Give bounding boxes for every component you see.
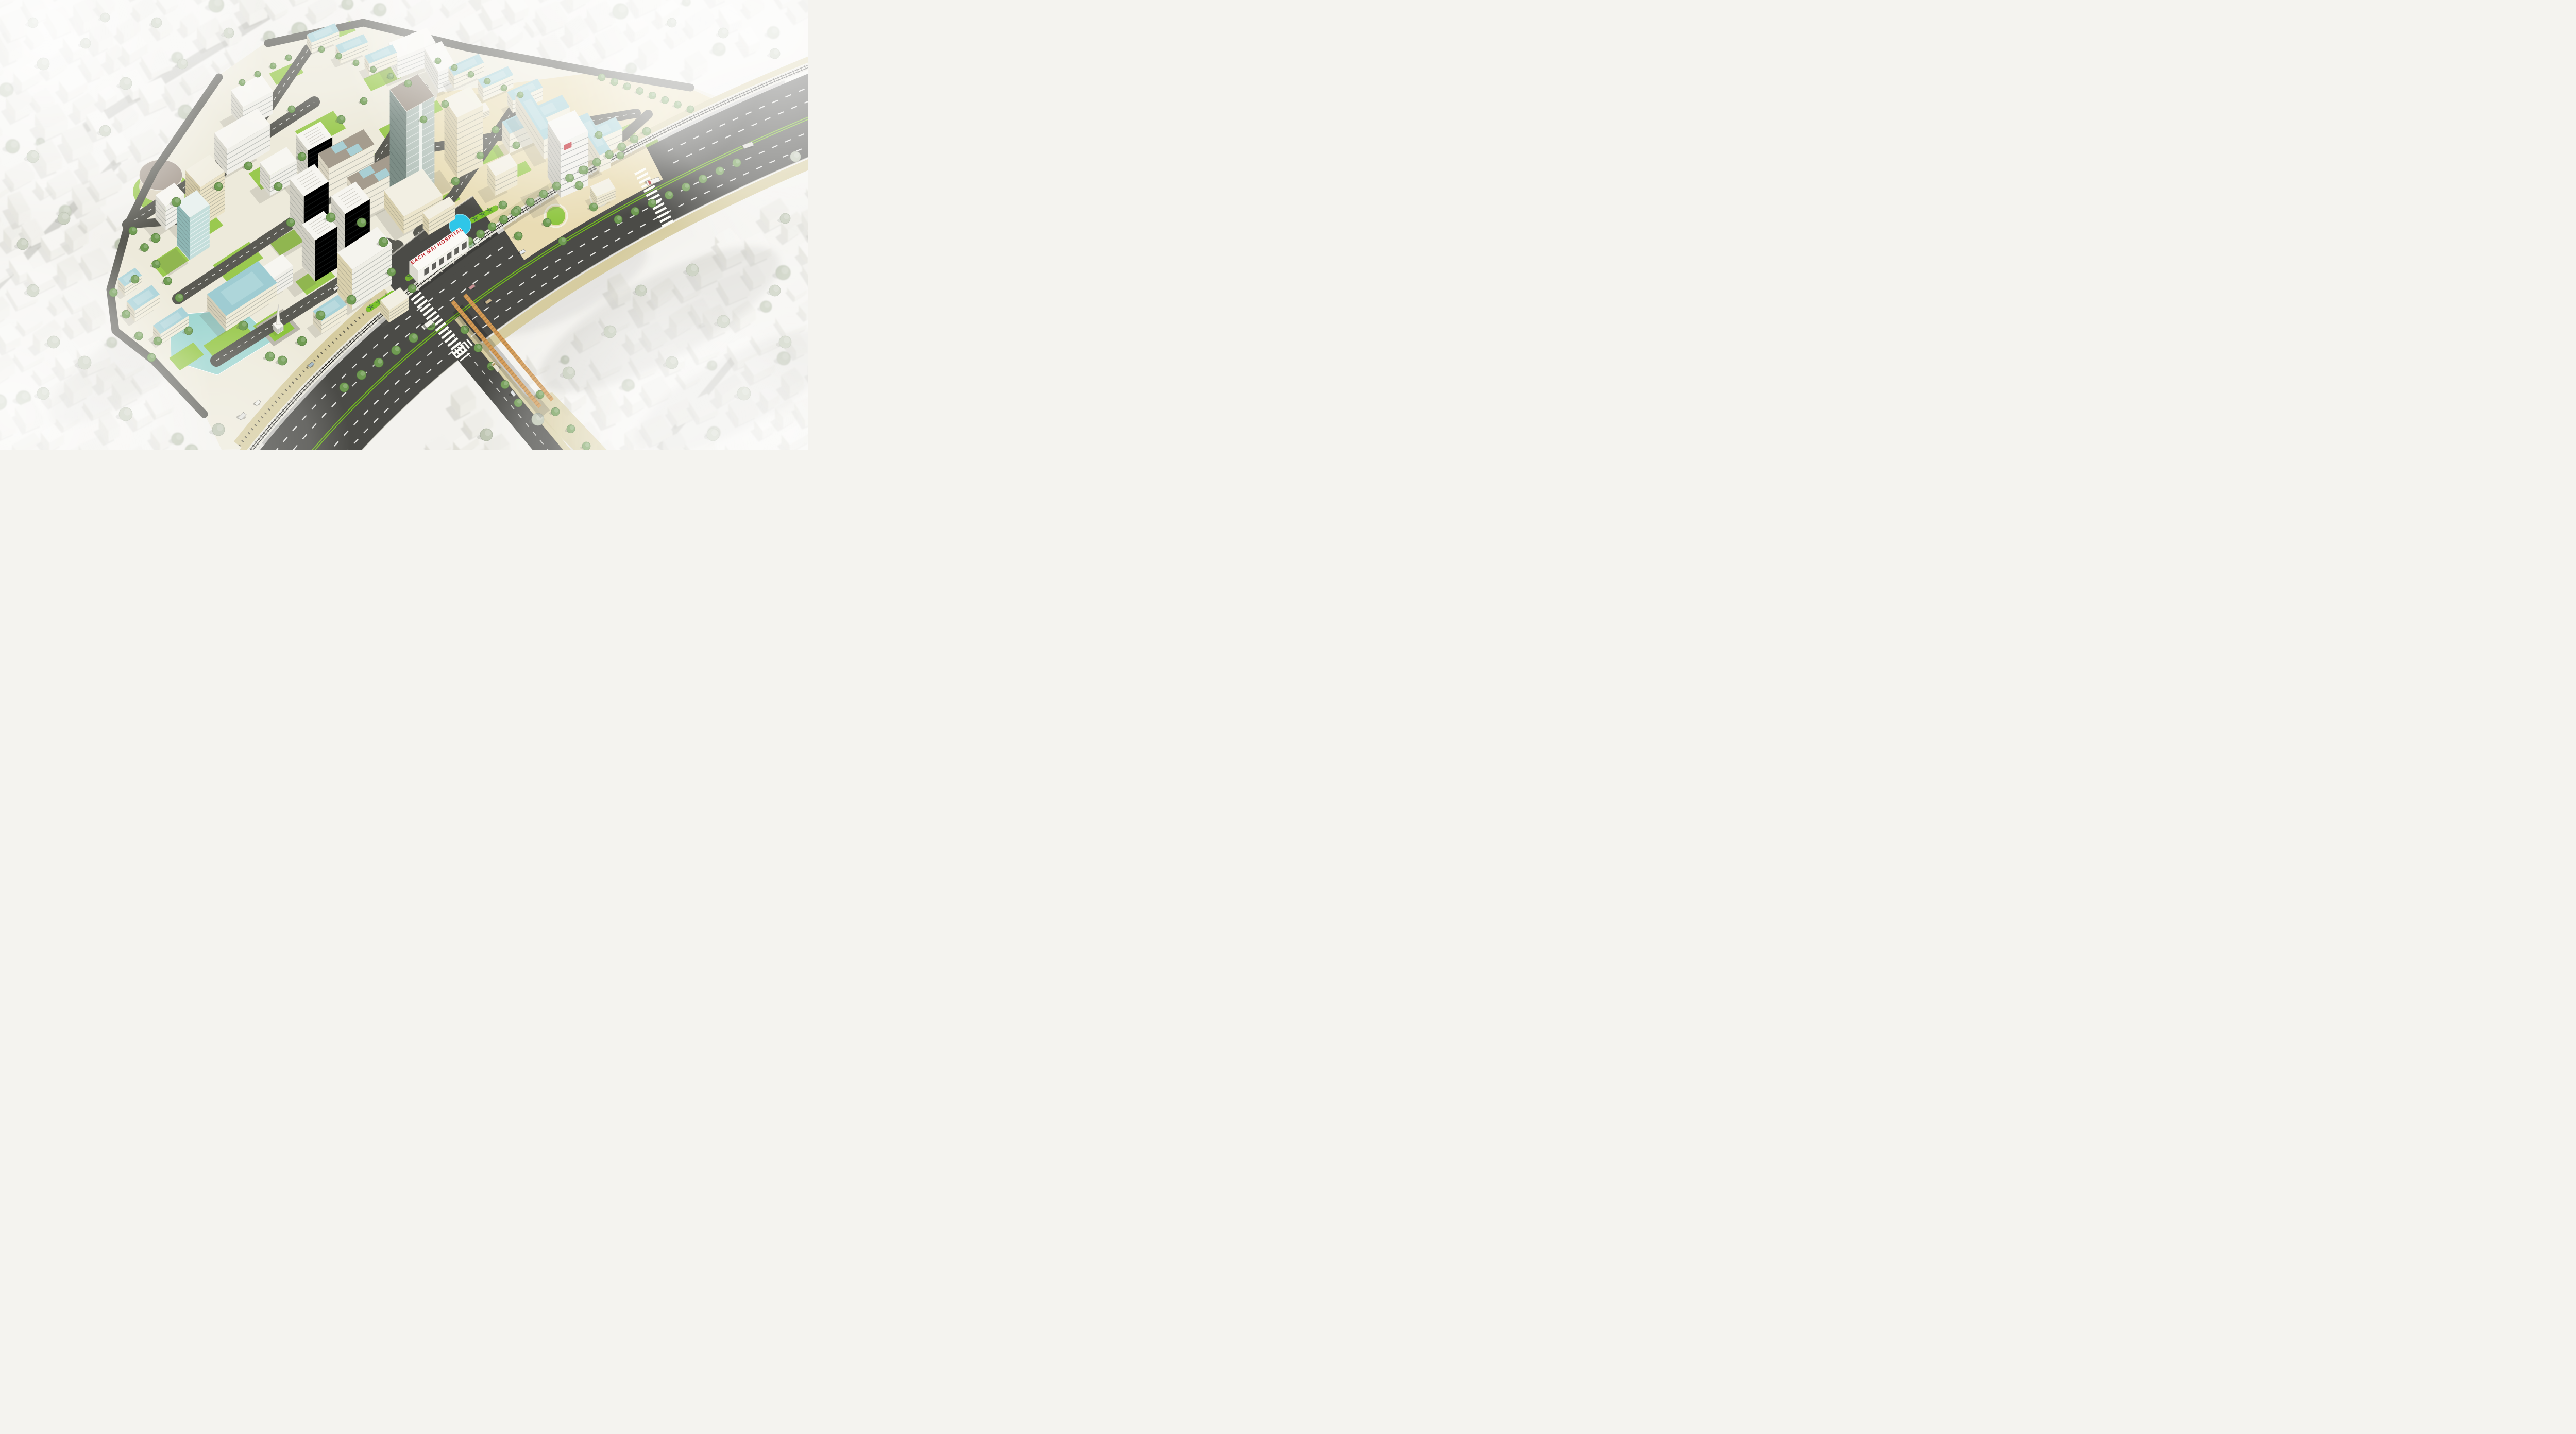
aerial-architectural-render: BACH MAI HOSPITAL: [0, 0, 808, 450]
scene-svg: BACH MAI HOSPITAL: [0, 0, 808, 450]
